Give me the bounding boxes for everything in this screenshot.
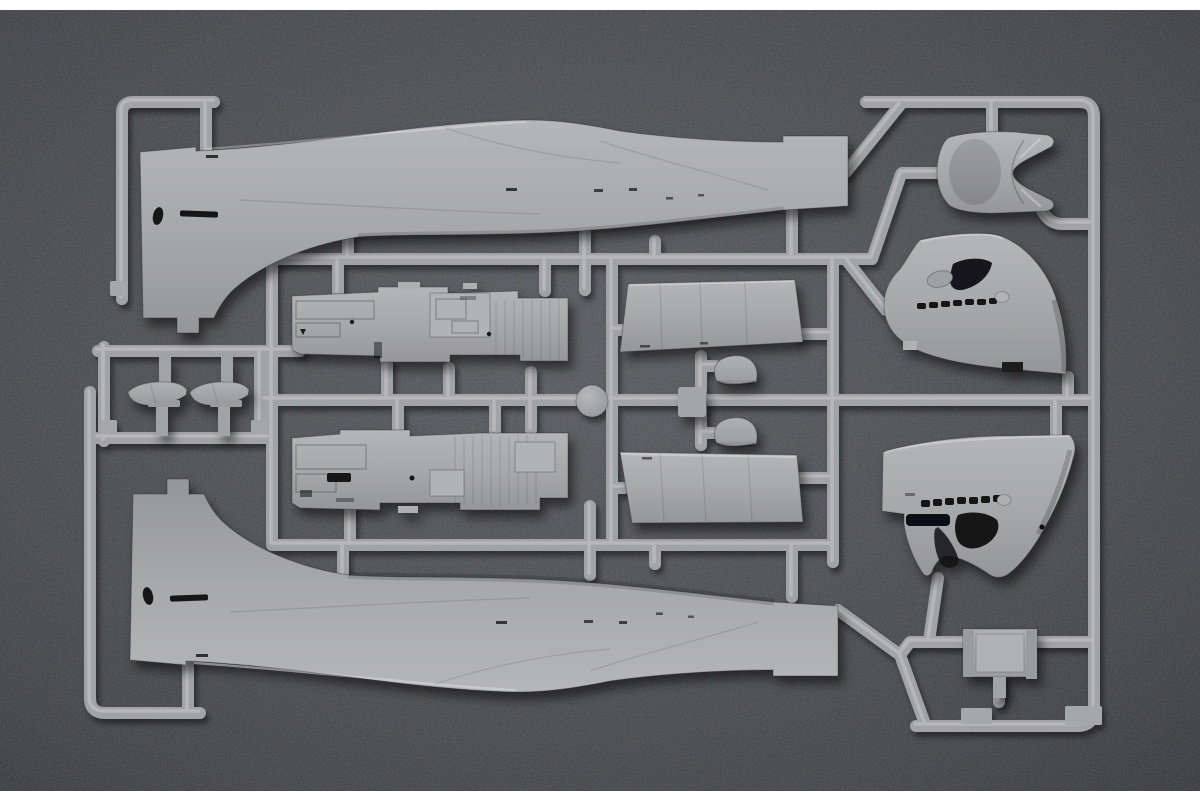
runner-pad <box>678 387 706 417</box>
white-strip-bottom <box>0 791 1200 800</box>
runner-tab <box>110 281 127 296</box>
part-intake-fairing-upper <box>714 356 757 385</box>
runner-tab <box>961 708 992 724</box>
runner-tab <box>1065 706 1102 725</box>
mould-disc <box>576 385 608 417</box>
runner-tab <box>101 420 117 434</box>
part-flap-panel-lower <box>620 452 803 523</box>
runner-tab <box>251 420 267 434</box>
part-cockpit-sidewall-lower <box>292 430 568 513</box>
sprue-photo-canvas <box>0 0 1200 800</box>
part-intake-fairing-lower <box>714 418 757 447</box>
part-flap-panel-upper <box>620 280 803 352</box>
white-strip-top <box>0 0 1200 10</box>
sprue-photo <box>0 0 1200 800</box>
